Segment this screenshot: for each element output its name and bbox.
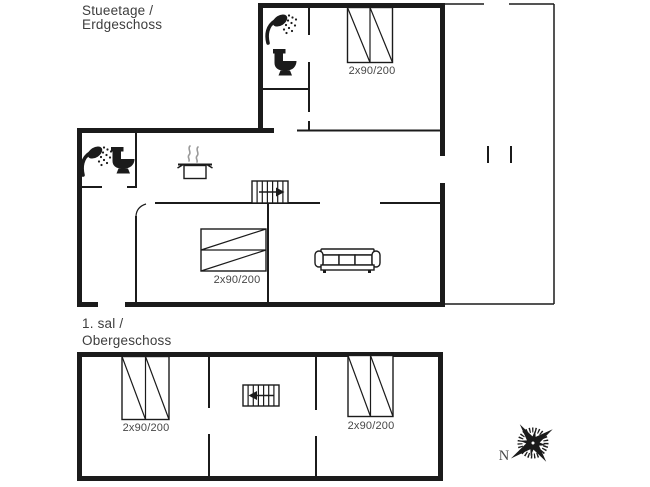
floorplan-drawing <box>0 0 650 487</box>
compass-rose-icon <box>511 424 553 462</box>
stairs-icon <box>243 385 279 406</box>
shower-icon <box>82 144 112 175</box>
toilet-icon <box>111 147 135 174</box>
stairs-icon <box>252 181 288 203</box>
upper-floor-plan <box>77 352 443 481</box>
bed-size-label: 2x90/200 <box>214 275 261 286</box>
upper-floor-title-line1: 1. sal / <box>82 317 123 331</box>
shower-icon <box>267 12 297 43</box>
ground-floor-plan <box>77 3 554 307</box>
floorplan-canvas: Stueetage / Erdgeschoss 1. sal / Oberges… <box>0 0 650 487</box>
double-bed-icon <box>122 357 169 420</box>
sofa-icon <box>315 249 380 273</box>
double-bed-icon <box>348 8 393 63</box>
ground-floor-title-line2: Erdgeschoss <box>82 18 162 32</box>
bed-size-label: 2x90/200 <box>123 423 170 434</box>
bed-size-label: 2x90/200 <box>348 421 395 432</box>
stove-pot-icon <box>178 146 213 179</box>
ground-floor-title-line1: Stueetage / <box>82 4 153 18</box>
bed-size-label: 2x90/200 <box>349 66 396 77</box>
upper-floor-title-line2: Obergeschoss <box>82 334 171 348</box>
double-bed-icon <box>201 229 266 271</box>
toilet-icon <box>273 49 297 76</box>
compass-north-label: N <box>499 448 509 465</box>
double-bed-icon <box>348 356 393 417</box>
terrace-outline <box>445 4 554 304</box>
